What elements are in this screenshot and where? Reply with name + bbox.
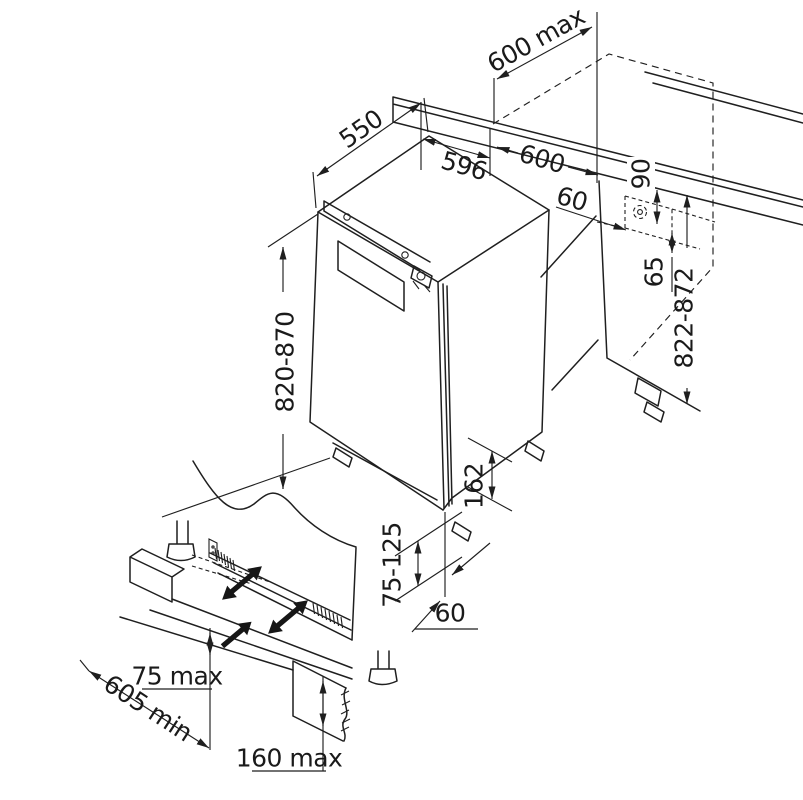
installation-drawing: 600 max 550 596 600 60 90 65 822-872 820… [0, 0, 803, 800]
dim-niche-depth-label: 600 max [482, 1, 589, 78]
adjust-arrow-icon [217, 561, 266, 606]
dim-worktop-offset-label: 60 [553, 181, 591, 217]
break-line [193, 461, 356, 547]
plinth-end-block [130, 549, 184, 602]
appliance [310, 136, 549, 541]
appliance-top-face [318, 136, 549, 282]
dim-appliance-depth-label: 550 [334, 104, 388, 154]
dim-socket-offset-label: 65 [640, 257, 669, 288]
dim-door-clearance-label: 60 [435, 599, 466, 628]
dim-plinth-overlap-label: 75 max [131, 662, 222, 691]
door-template-area [338, 241, 404, 311]
dim-plinth-range-label: 75-125 [378, 522, 407, 608]
adjustment-arrows [217, 561, 312, 652]
dim-socket-height-label: 90 [627, 159, 656, 190]
cabinet-feet [167, 521, 397, 685]
dim-appliance-height-label: 820-870 [271, 312, 300, 413]
socket-symbol [634, 206, 647, 219]
appliance-feet [333, 441, 544, 541]
dim-niche-width-label: 600 [516, 139, 568, 180]
installation-diagram: 600 max 550 596 600 60 90 65 822-872 820… [0, 0, 803, 800]
dim-base-recess-label: 162 [460, 463, 489, 509]
wall-edge [645, 72, 803, 123]
niche-floor-lines [541, 216, 598, 390]
plinth-cut-piece [293, 661, 350, 741]
adjust-arrow-icon [218, 616, 257, 652]
dim-appliance-width-label: 596 [438, 146, 490, 187]
mounting-rail [324, 201, 430, 270]
dim-cutout-height-label: 160 max [236, 744, 343, 773]
appliance-door [310, 212, 444, 510]
hinge-bracket [411, 266, 432, 292]
vent-grille [209, 539, 343, 628]
dim-niche-height-label: 822-872 [670, 268, 699, 369]
